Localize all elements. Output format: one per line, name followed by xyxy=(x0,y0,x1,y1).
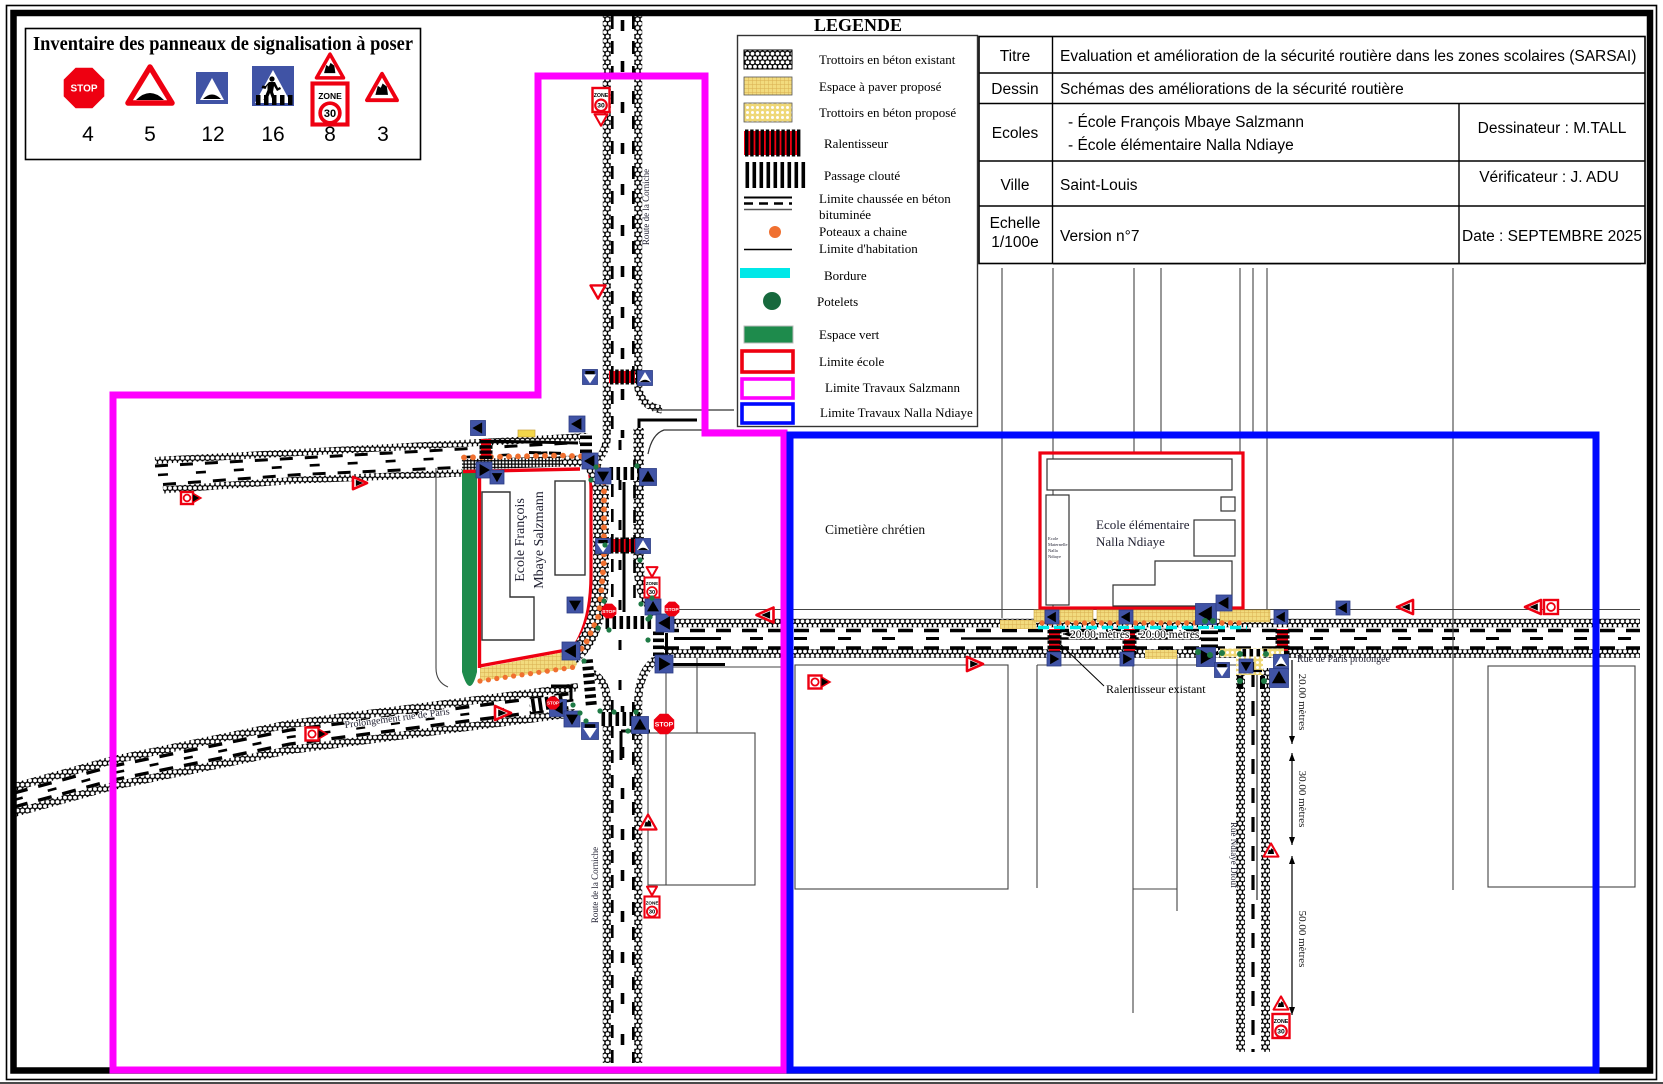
svg-text:Poteaux a chaine: Poteaux a chaine xyxy=(819,224,907,239)
svg-text:30: 30 xyxy=(649,590,655,596)
svg-text:Schémas des améliorations de l: Schémas des améliorations de la sécurité… xyxy=(1060,81,1404,98)
svg-text:ZONE: ZONE xyxy=(646,900,659,905)
svg-text:Passage clouté: Passage clouté xyxy=(824,168,900,183)
svg-text:Ville: Ville xyxy=(1000,177,1029,194)
svg-text:20.00 mètres: 20.00 mètres xyxy=(1296,674,1308,731)
svg-text:Nalla Ndiaye: Nalla Ndiaye xyxy=(1096,534,1165,549)
svg-text:ZONE: ZONE xyxy=(1274,1019,1289,1025)
svg-text:Maternelle: Maternelle xyxy=(1048,542,1068,547)
svg-text:20.00 mètres: 20.00 mètres xyxy=(1140,629,1200,641)
svg-text:50.00 mètres: 50.00 mètres xyxy=(1296,911,1308,968)
svg-text:5: 5 xyxy=(144,123,156,146)
svg-text:LEGENDE: LEGENDE xyxy=(814,15,902,35)
svg-text:Espace à paver proposé: Espace à paver proposé xyxy=(819,79,942,94)
svg-text:Espace vert: Espace vert xyxy=(819,327,880,342)
svg-text:Evaluation et amélioration de: Evaluation et amélioration de la sécurit… xyxy=(1060,48,1636,65)
svg-text:STOP: STOP xyxy=(547,701,559,706)
svg-text:20.00 mètres: 20.00 mètres xyxy=(1070,629,1130,641)
svg-text:Saint-Louis: Saint-Louis xyxy=(1060,177,1138,194)
svg-text:Rue de Paris prolongée: Rue de Paris prolongée xyxy=(1297,654,1391,665)
svg-text:30: 30 xyxy=(649,910,656,916)
svg-text:Route de la Corniche: Route de la Corniche xyxy=(590,847,600,923)
svg-text:Limite d'habitation: Limite d'habitation xyxy=(819,241,918,256)
svg-text:bituminée: bituminée xyxy=(819,207,871,222)
svg-text:8: 8 xyxy=(324,123,336,146)
svg-text:Bordure: Bordure xyxy=(824,268,867,283)
svg-text:16: 16 xyxy=(261,123,284,146)
svg-text:Trottoirs en béton proposé: Trottoirs en béton proposé xyxy=(819,105,956,120)
svg-text:Limite chaussée en béton: Limite chaussée en béton xyxy=(819,191,951,206)
svg-text:Potelets: Potelets xyxy=(817,294,858,309)
svg-text:30: 30 xyxy=(1277,1029,1285,1036)
svg-text:3: 3 xyxy=(377,123,389,146)
svg-text:Cimetière chrétien: Cimetière chrétien xyxy=(825,522,925,537)
svg-text:- École François Mbaye Salzman: - École François Mbaye Salzmann xyxy=(1068,114,1304,131)
svg-text:Ralentisseur existant: Ralentisseur existant xyxy=(1106,682,1206,696)
svg-text:Limite école: Limite école xyxy=(819,354,885,369)
svg-text:Nalla: Nalla xyxy=(1048,548,1058,553)
svg-text:Ecole élémentaire: Ecole élémentaire xyxy=(1096,517,1190,532)
svg-text:Dessin: Dessin xyxy=(991,81,1038,98)
svg-text:Limite Travaux Nalla Ndiaye: Limite Travaux Nalla Ndiaye xyxy=(820,405,973,420)
svg-text:STOP: STOP xyxy=(665,607,679,613)
svg-text:Ndiaye: Ndiaye xyxy=(1048,554,1061,559)
svg-text:30: 30 xyxy=(324,108,336,120)
svg-text:- École élémentaire Nalla Ndia: - École élémentaire Nalla Ndiaye xyxy=(1068,137,1294,154)
svg-text:Rue Ndiaye Diouf: Rue Ndiaye Diouf xyxy=(1229,822,1239,888)
svg-text:4: 4 xyxy=(82,123,94,146)
svg-text:STOP: STOP xyxy=(602,609,616,615)
svg-text:Date : SEPTEMBRE 2025: Date : SEPTEMBRE 2025 xyxy=(1462,228,1642,245)
svg-text:Ralentisseur: Ralentisseur xyxy=(824,136,889,151)
svg-text:Vérificateur : J. ADU: Vérificateur : J. ADU xyxy=(1479,169,1619,186)
svg-text:Echelle: Echelle xyxy=(990,215,1041,232)
svg-text:Inventaire des panneaux de sig: Inventaire des panneaux de signalisation… xyxy=(33,33,413,55)
svg-text:Ecole: Ecole xyxy=(1048,536,1058,541)
svg-text:STOP: STOP xyxy=(70,84,97,95)
svg-text:ZONE: ZONE xyxy=(318,91,342,101)
svg-text:Dessinateur : M.TALL: Dessinateur : M.TALL xyxy=(1478,120,1627,137)
svg-text:1/100e: 1/100e xyxy=(991,234,1038,251)
svg-text:Trottoirs en béton existant: Trottoirs en béton existant xyxy=(819,52,956,67)
svg-text:Ecole François: Ecole François xyxy=(513,498,528,582)
svg-text:Mbaye Salzmann: Mbaye Salzmann xyxy=(532,491,547,589)
svg-text:Titre: Titre xyxy=(1000,48,1030,65)
svg-text:STOP: STOP xyxy=(655,721,674,728)
svg-text:Limite Travaux Salzmann: Limite Travaux Salzmann xyxy=(825,380,961,395)
svg-text:ZONE: ZONE xyxy=(594,93,609,99)
svg-text:12: 12 xyxy=(201,123,224,146)
svg-text:Ecoles: Ecoles xyxy=(992,125,1039,142)
svg-text:30.00 mètres: 30.00 mètres xyxy=(1296,771,1308,828)
svg-text:ZONE: ZONE xyxy=(646,581,658,586)
svg-text:Version n°7: Version n°7 xyxy=(1060,228,1139,245)
svg-text:Route de la Corniche: Route de la Corniche xyxy=(641,169,651,245)
svg-text:30: 30 xyxy=(597,103,605,110)
